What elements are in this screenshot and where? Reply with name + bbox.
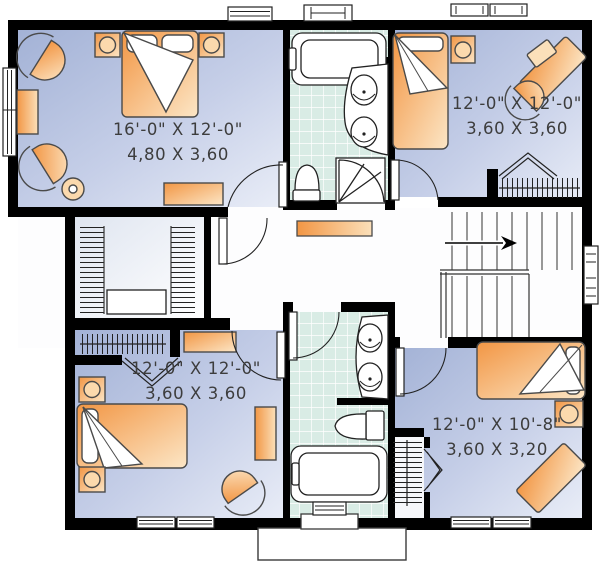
room-dim-imperial: 12'-0" X 12'-0" bbox=[106, 356, 286, 381]
nightstand-lamp bbox=[79, 467, 105, 492]
room-dim-imperial: 12'-0" X 10'-8" bbox=[407, 412, 587, 437]
room-dim-metric: 3,60 X 3,20 bbox=[407, 437, 587, 462]
side-table bbox=[17, 90, 38, 134]
walkin-drawer-unit bbox=[107, 290, 166, 314]
room-label-bedroom2: 12'-0" X 12'-0" 3,60 X 3,60 bbox=[427, 91, 600, 141]
room-dim-metric: 3,60 X 3,60 bbox=[106, 381, 286, 406]
double-bed bbox=[122, 31, 198, 117]
bedroom2-door-threshold bbox=[395, 197, 438, 208]
dresser bbox=[164, 183, 223, 205]
bath-bottom-window bbox=[313, 502, 346, 515]
room-dim-metric: 3,60 X 3,60 bbox=[427, 116, 600, 141]
double-bed bbox=[77, 404, 187, 468]
room-dim-metric: 4,80 X 3,60 bbox=[78, 142, 278, 167]
vanity-double-sink bbox=[356, 315, 388, 399]
nightstand-lamp bbox=[451, 36, 475, 63]
room-dim-imperial: 16'-0" X 12'-0" bbox=[78, 117, 278, 142]
master-top-window bbox=[228, 7, 272, 21]
room-label-master: 16'-0" X 12'-0" 4,80 X 3,60 bbox=[78, 117, 278, 167]
walkin-shelves-left bbox=[80, 226, 104, 314]
nightstand-lamp bbox=[79, 377, 105, 402]
tall-dresser bbox=[255, 407, 276, 460]
bay-step bbox=[301, 514, 358, 529]
bathtub bbox=[291, 446, 387, 502]
nightstand-lamp bbox=[95, 33, 120, 57]
walkin-shelves-right bbox=[171, 226, 195, 314]
bedroom3-bottom-windows bbox=[137, 517, 214, 528]
single-bed bbox=[477, 342, 585, 399]
room-label-bedroom4: 12'-0" X 10'-8" 3,60 X 3,20 bbox=[407, 412, 587, 462]
bedroom4-bottom-windows bbox=[451, 517, 531, 528]
floor-plan: 16'-0" X 12'-0" 4,80 X 3,60 12'-0" X 12'… bbox=[0, 0, 600, 572]
room-dim-imperial: 12'-0" X 12'-0" bbox=[427, 91, 600, 116]
nightstand-lamp bbox=[199, 33, 224, 57]
master-left-window bbox=[3, 68, 16, 156]
stairwell-right-window bbox=[584, 246, 598, 304]
round-table bbox=[62, 178, 84, 200]
shower-door bbox=[336, 158, 385, 203]
room-label-bedroom3: 12'-0" X 12'-0" 3,60 X 3,60 bbox=[106, 356, 286, 406]
dresser bbox=[184, 332, 236, 352]
hall-console-table bbox=[297, 221, 372, 236]
bedroom2-top-windows bbox=[451, 4, 527, 16]
bathroom-top-window bbox=[304, 5, 352, 21]
floor-plan-drawing bbox=[0, 0, 600, 572]
